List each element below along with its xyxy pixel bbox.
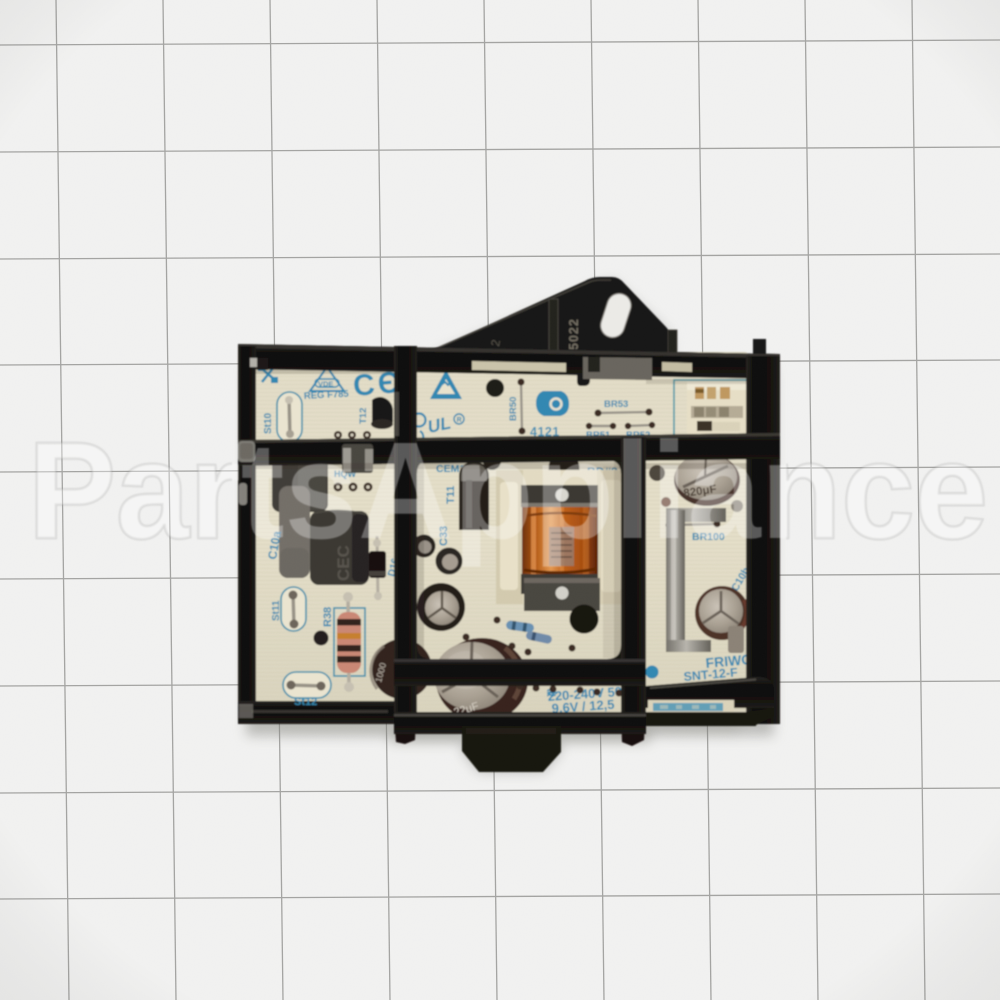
svg-text:PartsAppliance: PartsAppliance (28, 414, 988, 568)
